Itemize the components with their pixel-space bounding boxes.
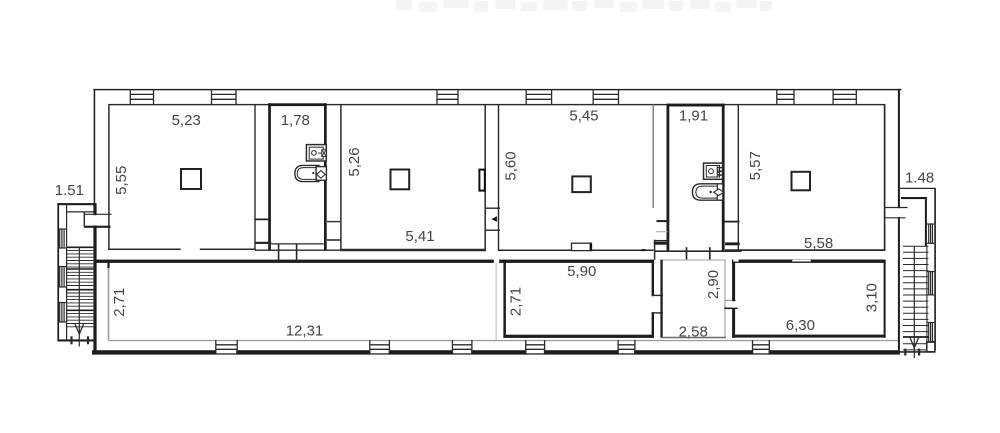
svg-text:12,31: 12,31	[286, 323, 324, 340]
svg-text:6,30: 6,30	[786, 317, 815, 334]
svg-text:3,10: 3,10	[864, 283, 881, 312]
svg-text:5,55: 5,55	[113, 166, 130, 195]
svg-text:1.51: 1.51	[55, 182, 84, 199]
svg-text:5,23: 5,23	[172, 112, 201, 129]
svg-text:2,58: 2,58	[679, 323, 708, 340]
svg-text:2,71: 2,71	[111, 288, 128, 317]
svg-text:5,60: 5,60	[503, 151, 520, 180]
svg-text:5,45: 5,45	[569, 107, 598, 124]
svg-text:1.48: 1.48	[905, 170, 934, 187]
svg-text:2,71: 2,71	[508, 287, 525, 316]
svg-text:5,26: 5,26	[346, 147, 363, 176]
svg-text:5,58: 5,58	[804, 235, 833, 252]
svg-text:2,90: 2,90	[705, 270, 722, 299]
svg-text:5,41: 5,41	[405, 228, 434, 245]
svg-text:1,91: 1,91	[679, 107, 708, 124]
svg-text:5,90: 5,90	[567, 263, 596, 280]
svg-text:1,78: 1,78	[281, 112, 310, 129]
svg-text:5,57: 5,57	[747, 151, 764, 180]
